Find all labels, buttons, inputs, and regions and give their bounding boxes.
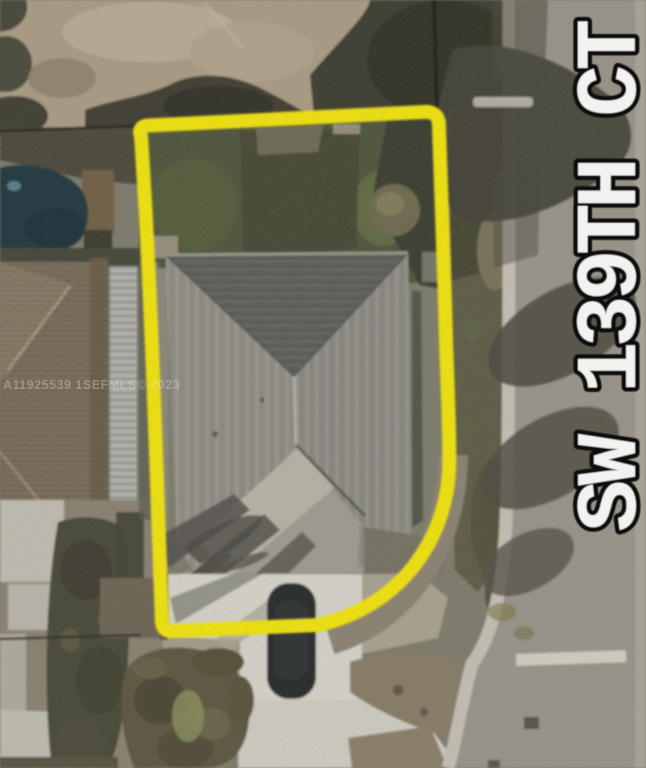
svg-text:A11925539 1SEFMLS© 2023: A11925539 1SEFMLS© 2023: [3, 378, 180, 392]
svg-text:SW 139TH CT: SW 139TH CT: [563, 21, 646, 532]
